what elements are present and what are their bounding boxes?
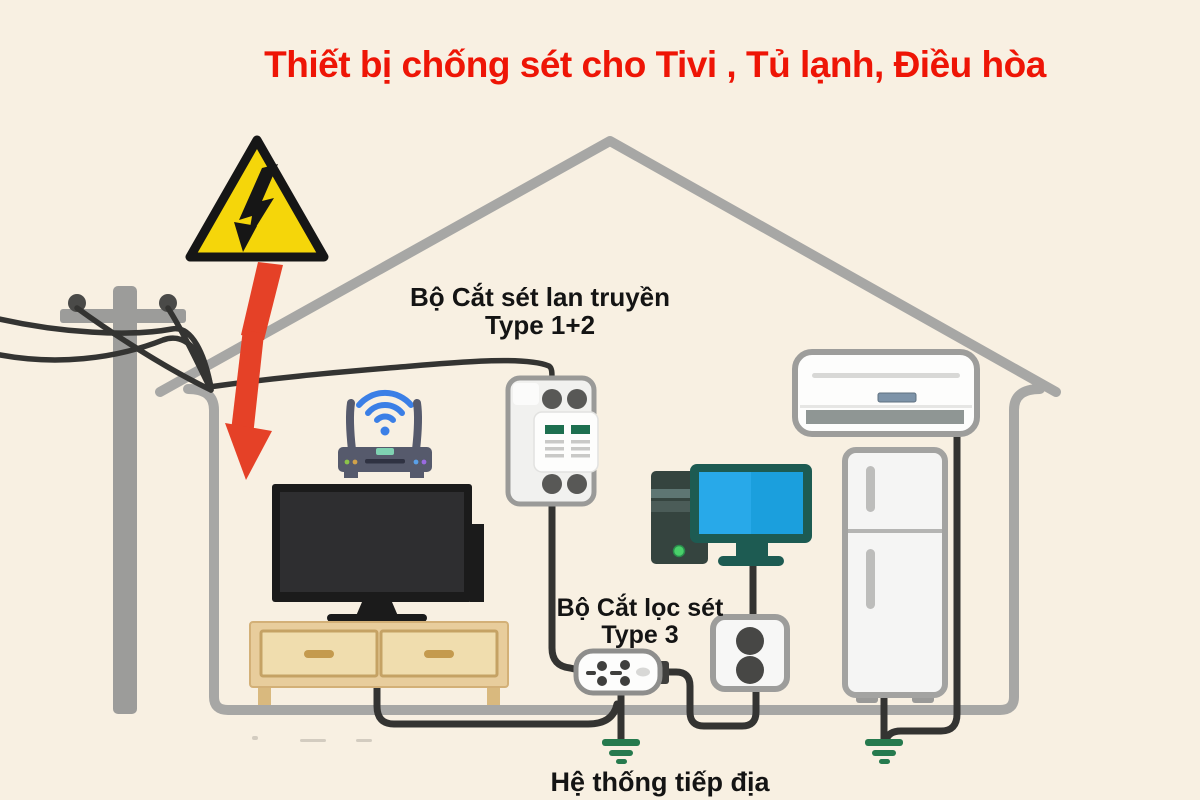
label-surge-type12-line2: Type 1+2 (390, 311, 690, 339)
high-voltage-warning-icon (190, 140, 324, 257)
label-surge-type12: Bộ Cắt sét lan truyền Type 1+2 (390, 283, 690, 339)
floor-marks (252, 736, 372, 742)
router-antenna-right (416, 403, 418, 450)
label-surge-type3-line2: Type 3 (490, 622, 790, 649)
label-surge-type12-line1: Bộ Cắt sét lan truyền (390, 283, 690, 311)
surge-protector-type12 (508, 378, 598, 504)
label-surge-type3-line1: Bộ Cắt lọc sét (490, 595, 790, 622)
ground-symbol-main (602, 739, 640, 764)
power-strip-type3 (576, 651, 669, 693)
lightning-arrow-icon (225, 262, 283, 480)
label-surge-type3: Bộ Cắt lọc sét Type 3 (490, 595, 790, 649)
refrigerator (845, 450, 945, 703)
diagram-title: Thiết bị chống sét cho Tivi , Tủ lạnh, Đ… (150, 44, 1160, 86)
scene-illustration (0, 0, 1200, 800)
tv (272, 484, 484, 622)
computer-monitor (690, 464, 812, 566)
wifi-icon (359, 393, 411, 436)
wifi-router (338, 393, 432, 478)
ground-symbol-right (865, 739, 903, 764)
label-grounding-system: Hệ thống tiếp địa (510, 768, 810, 797)
router-antenna-left (350, 403, 352, 450)
air-conditioner (795, 352, 977, 434)
diagram-canvas: Thiết bị chống sét cho Tivi , Tủ lạnh, Đ… (0, 0, 1200, 800)
